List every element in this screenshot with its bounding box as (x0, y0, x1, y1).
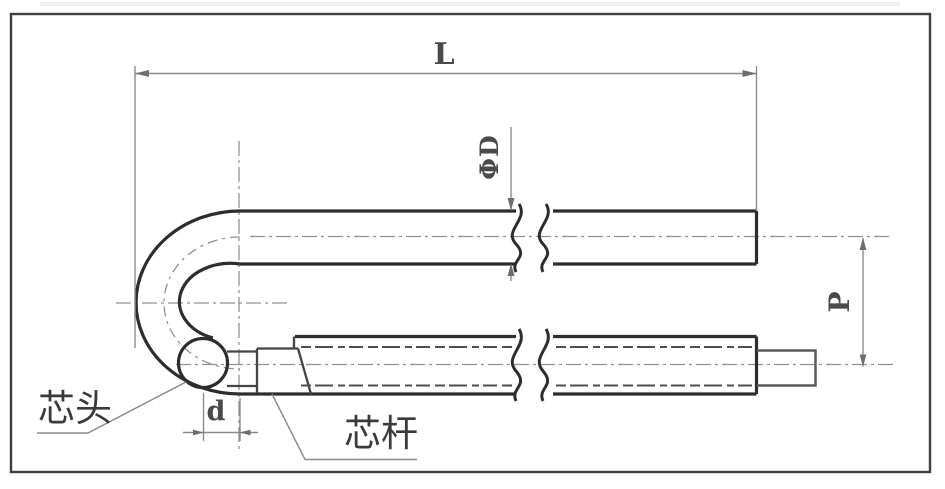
d-arrow-right (240, 430, 251, 436)
dim-label-diameter: ΦD (475, 134, 504, 179)
technical-drawing: L ΦD P d 芯头 芯杆 (0, 0, 945, 489)
inner-bend-arc (179, 263, 240, 338)
P-arrow-top (860, 238, 867, 251)
part-label-core-head: 芯头 (38, 387, 112, 430)
drawing-frame (11, 14, 930, 472)
break-symbols (512, 204, 548, 401)
dim-label-length: L (433, 37, 454, 72)
sheath-texture (301, 347, 754, 386)
top-tube-break-right (539, 204, 548, 272)
terminal-pin (757, 351, 816, 386)
dim-label-core-diameter: d (207, 396, 226, 427)
centerlines (116, 141, 893, 452)
core-head-circle (179, 339, 228, 388)
scan-artifact (40, 2, 900, 6)
L-arrow-left (135, 70, 149, 77)
dim-label-pitch: P (823, 291, 856, 312)
d-arrow-left (193, 430, 204, 436)
block-slanted-edge (298, 349, 311, 395)
L-arrow-right (743, 70, 757, 77)
top-tube-break-left (512, 204, 521, 272)
drawing-canvas: L ΦD P d 芯头 芯杆 (0, 0, 945, 489)
D-arrow-down (508, 198, 515, 211)
part-label-core-rod: 芯杆 (344, 412, 418, 455)
